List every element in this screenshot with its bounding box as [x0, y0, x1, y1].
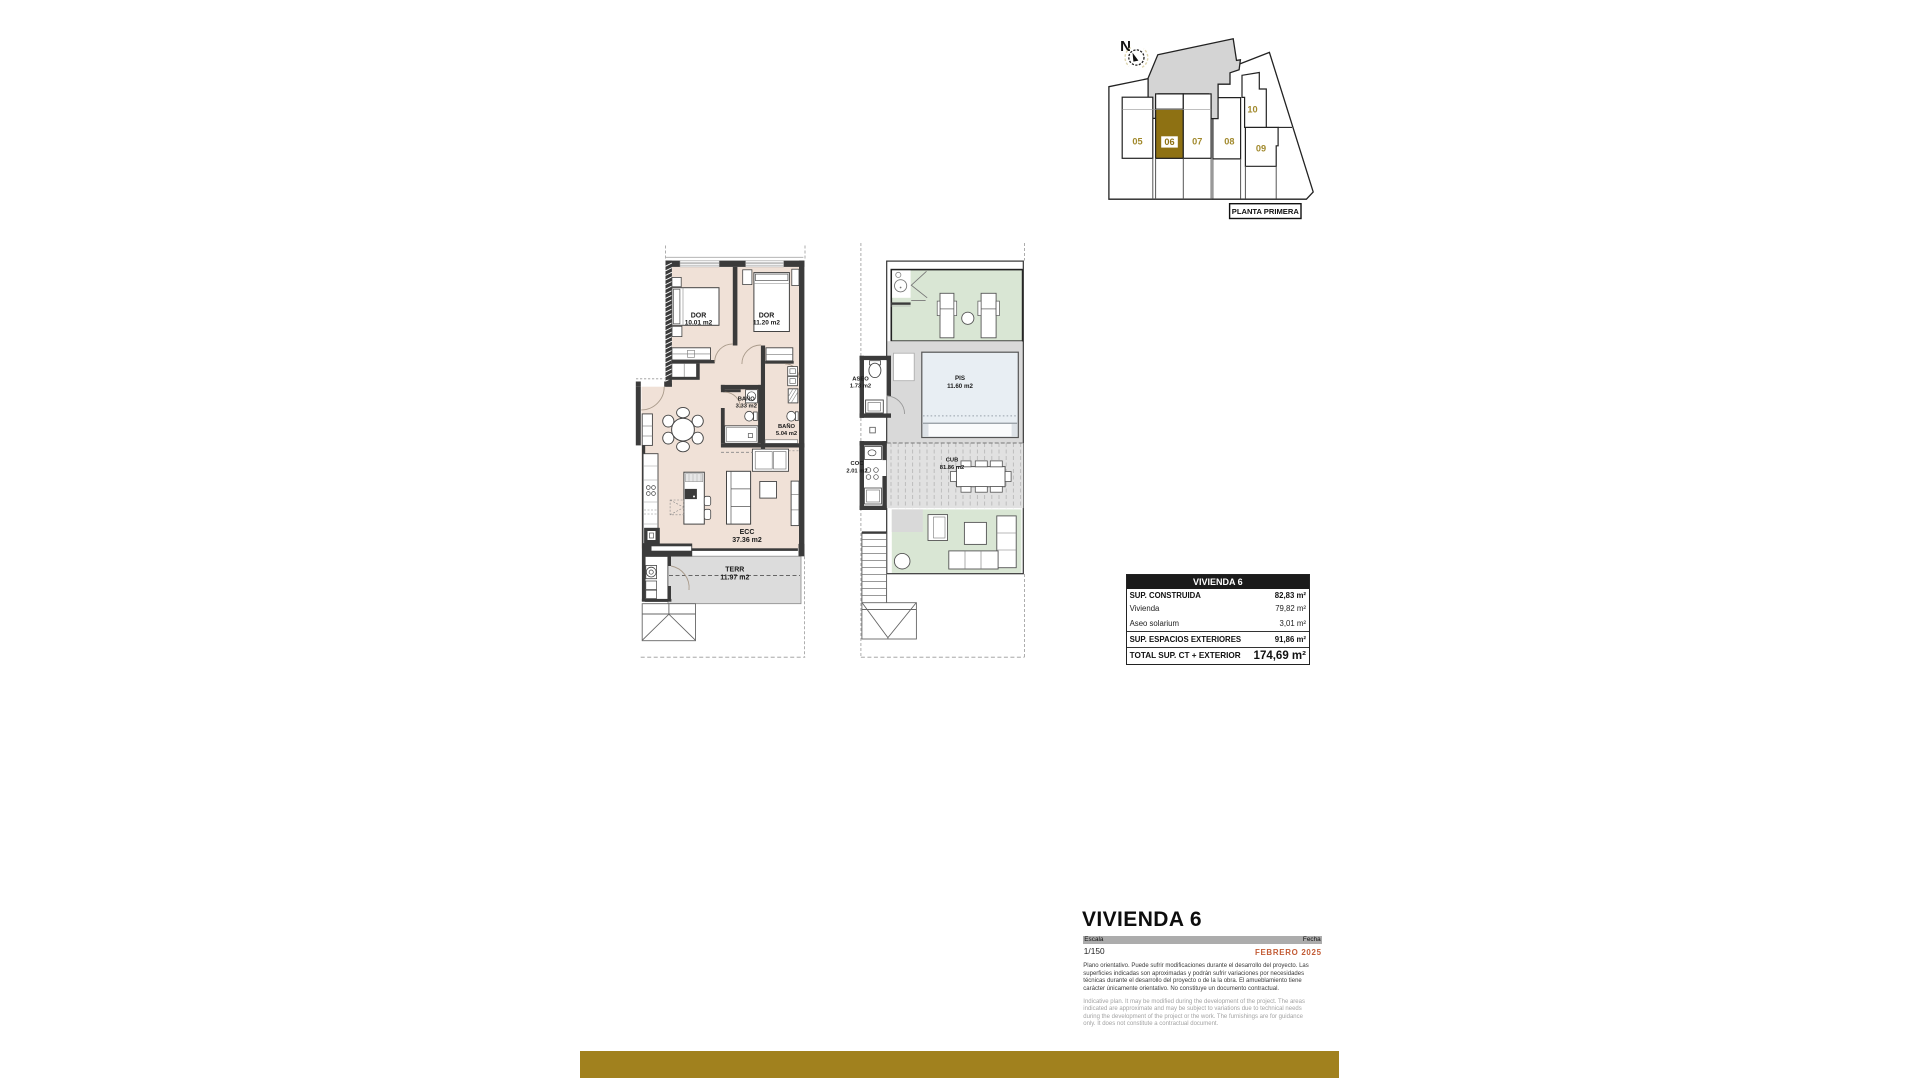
svg-text:10: 10: [1247, 104, 1257, 114]
svg-text:TERR: TERR: [725, 567, 744, 574]
svg-text:09: 09: [1256, 143, 1266, 153]
svg-text:BAÑO: BAÑO: [738, 395, 756, 402]
svg-text:06: 06: [1164, 137, 1174, 147]
svg-text:07: 07: [1192, 136, 1202, 146]
svg-text:3.33 m2: 3.33 m2: [736, 404, 757, 410]
svg-text:1.73 m2: 1.73 m2: [850, 384, 871, 390]
svg-text:BAÑO: BAÑO: [778, 423, 796, 430]
svg-text:ASEO: ASEO: [852, 377, 869, 383]
svg-text:CUB: CUB: [946, 458, 959, 464]
svg-text:PIS: PIS: [955, 375, 965, 382]
svg-text:11.97 m2: 11.97 m2: [720, 574, 749, 581]
svg-text:5.04 m2: 5.04 m2: [776, 431, 797, 437]
svg-text:08: 08: [1224, 136, 1234, 146]
svg-text:2.01 m2: 2.01 m2: [846, 469, 867, 475]
svg-text:11.60 m2: 11.60 m2: [947, 383, 973, 390]
svg-text:10.01 m2: 10.01 m2: [685, 319, 713, 326]
svg-text:ECC: ECC: [740, 529, 755, 536]
svg-text:05: 05: [1132, 136, 1142, 146]
svg-text:PLANTA PRIMERA: PLANTA PRIMERA: [1232, 207, 1300, 216]
svg-text:81.86 m2: 81.86 m2: [940, 465, 965, 471]
svg-text:N: N: [1120, 38, 1131, 55]
svg-text:COC: COC: [851, 461, 865, 467]
svg-text:11.20 m2: 11.20 m2: [753, 319, 780, 326]
svg-text:37.36 m2: 37.36 m2: [732, 537, 762, 544]
